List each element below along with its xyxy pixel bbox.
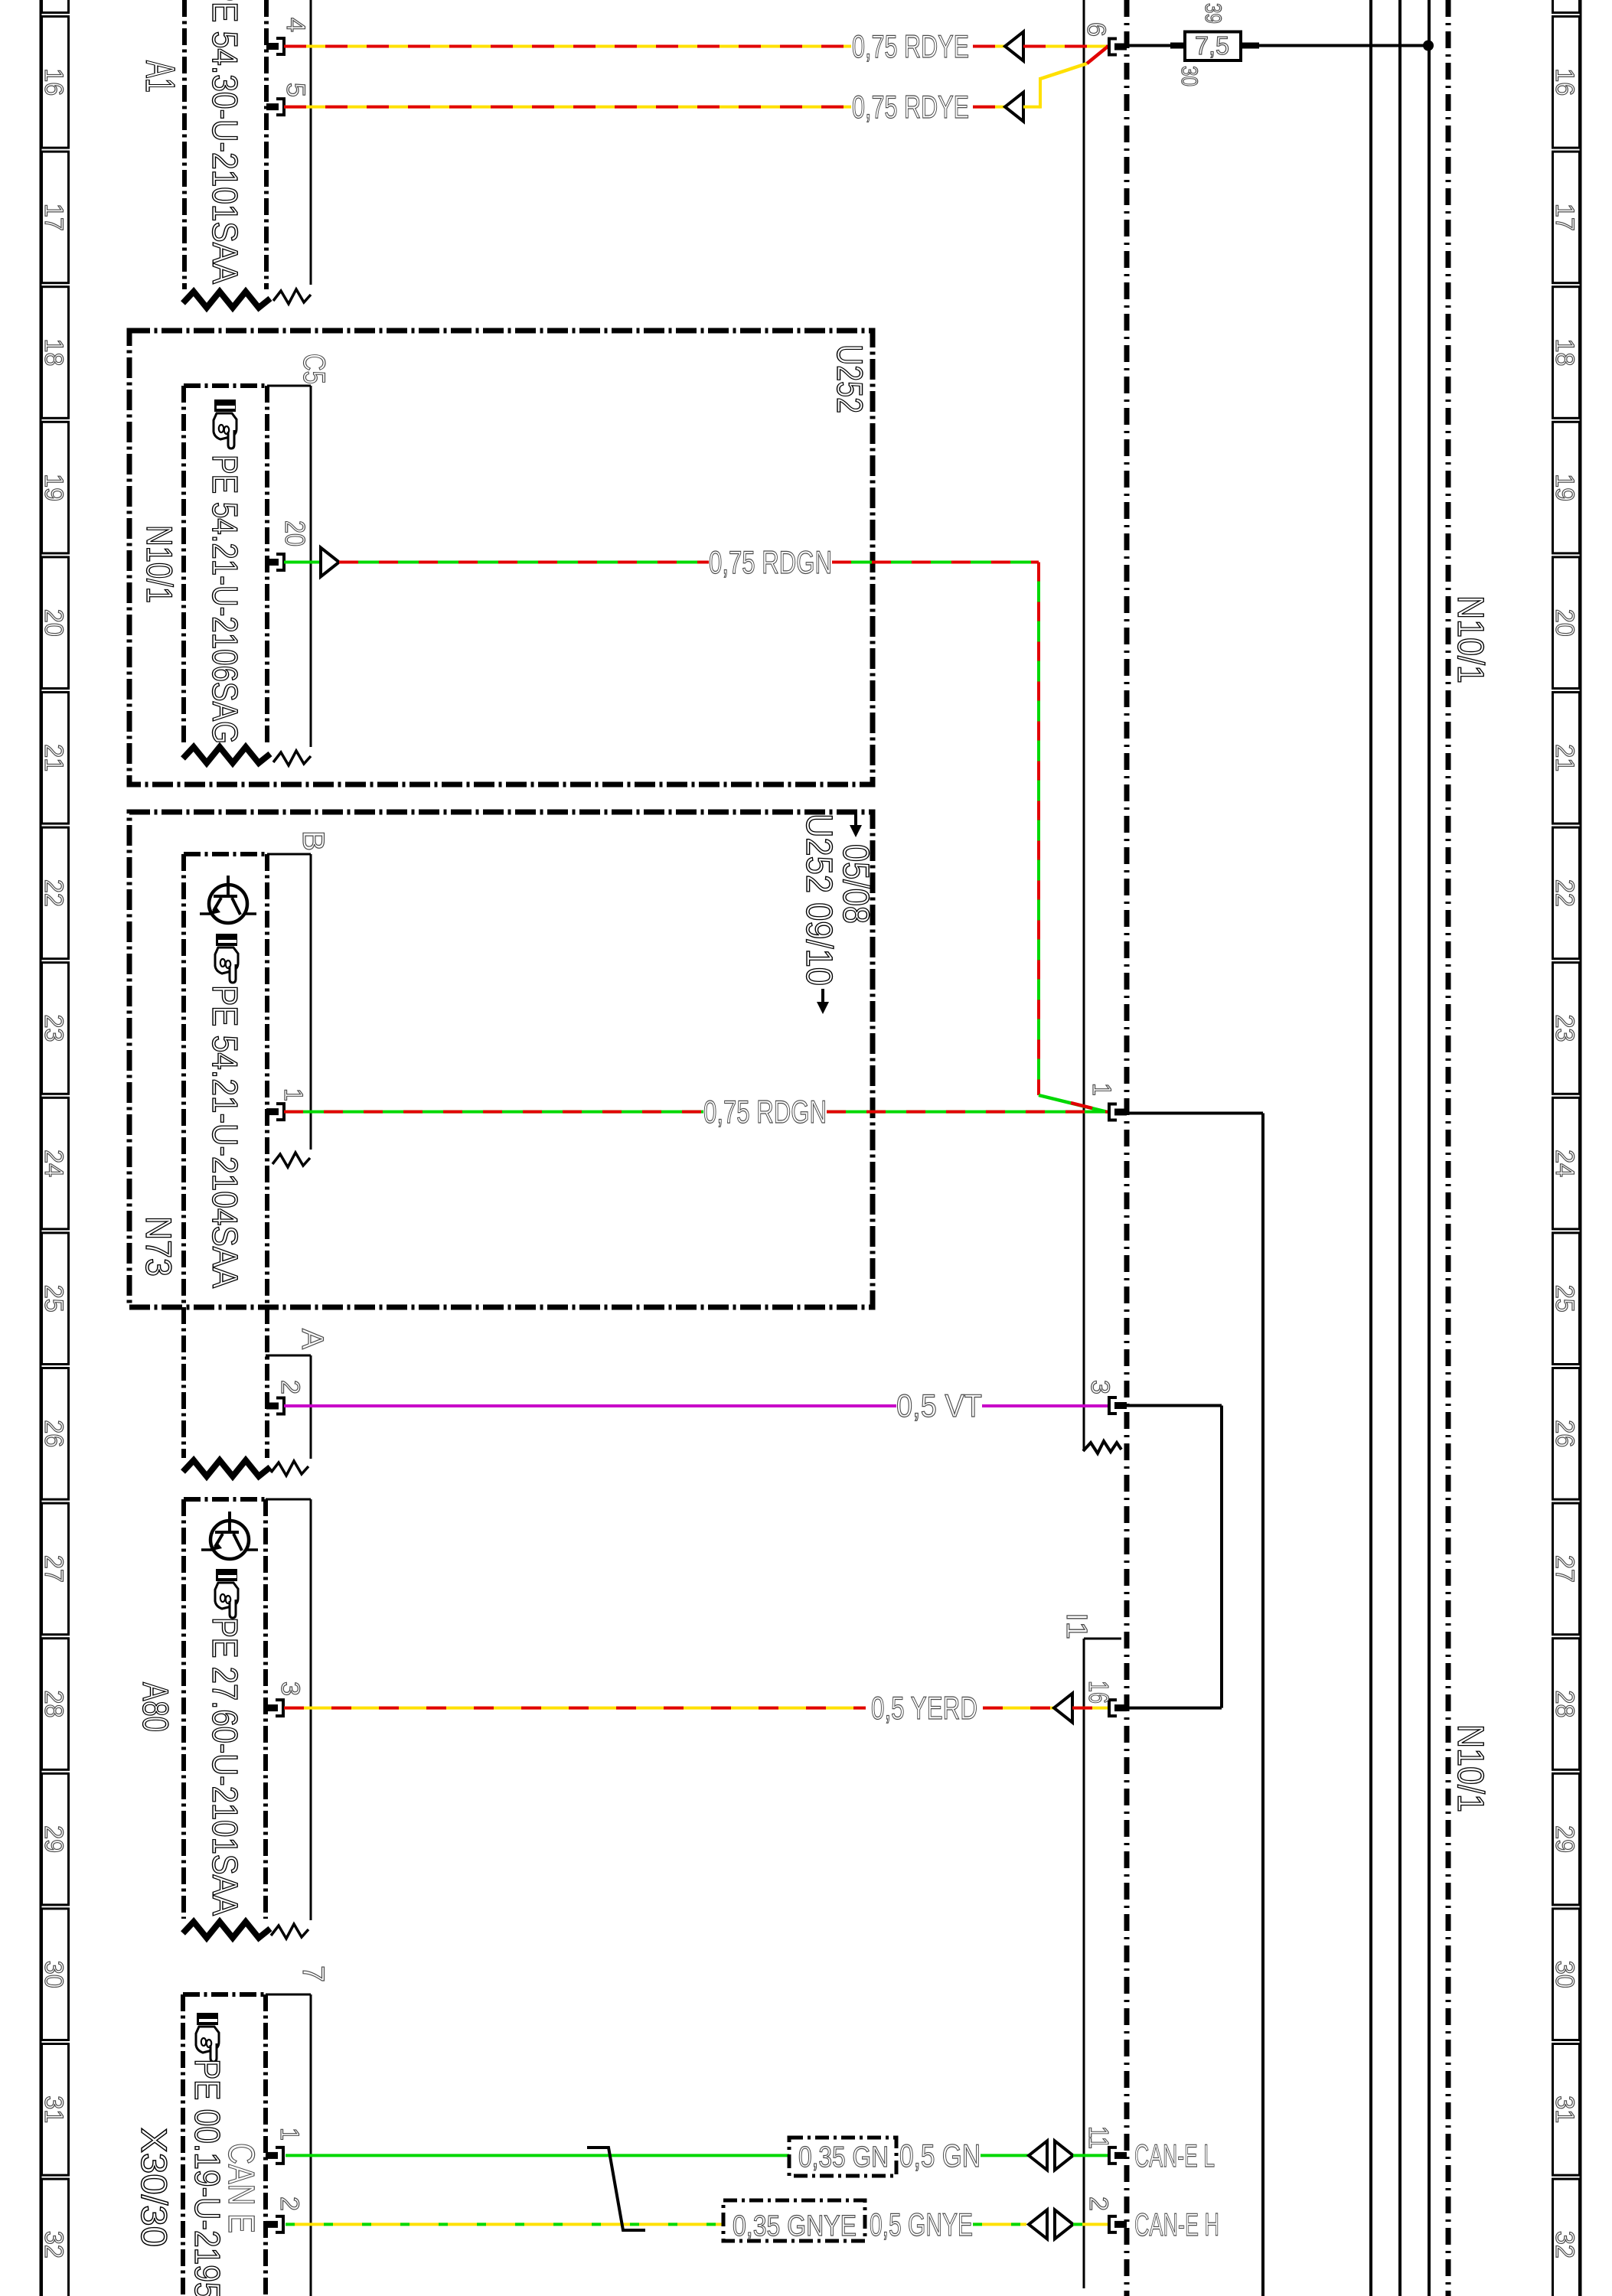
- svg-text:PE 27.60-U-2101SAA: PE 27.60-U-2101SAA: [205, 1617, 245, 1916]
- svg-text:17: 17: [39, 204, 68, 231]
- svg-text:1: 1: [275, 2128, 304, 2141]
- svg-text:U252 09/10: U252 09/10: [798, 814, 839, 986]
- svg-text:39: 39: [1200, 3, 1225, 24]
- svg-text:28: 28: [39, 1691, 68, 1718]
- svg-text:B: B: [296, 830, 330, 851]
- svg-text:24: 24: [1550, 1150, 1579, 1177]
- svg-text:25: 25: [39, 1285, 68, 1313]
- svg-text:N73: N73: [139, 1216, 179, 1277]
- svg-text:20: 20: [279, 520, 311, 546]
- svg-text:X30/30: X30/30: [134, 2128, 175, 2247]
- svg-text:23: 23: [1550, 1015, 1579, 1042]
- svg-text:1: 1: [1087, 1083, 1116, 1096]
- svg-text:26: 26: [39, 1420, 68, 1447]
- svg-text:0,75 RDYE: 0,75 RDYE: [852, 89, 969, 125]
- svg-text:A1: A1: [137, 60, 183, 93]
- svg-text:0,75 RDYE: 0,75 RDYE: [852, 28, 969, 64]
- svg-text:PE 54.21-U-2104SAA: PE 54.21-U-2104SAA: [205, 985, 245, 1288]
- svg-text:N10/1: N10/1: [139, 525, 180, 603]
- svg-text:21: 21: [39, 744, 68, 771]
- svg-text:23: 23: [39, 1015, 68, 1042]
- svg-text:25: 25: [1550, 1285, 1579, 1313]
- svg-text:CAN-E L: CAN-E L: [1134, 2138, 1215, 2174]
- svg-text:22: 22: [1550, 879, 1579, 907]
- svg-text:16: 16: [1550, 68, 1579, 96]
- svg-text:30: 30: [39, 1961, 68, 1988]
- svg-text:N10/1: N10/1: [1450, 1724, 1490, 1812]
- svg-text:19: 19: [1550, 474, 1579, 501]
- svg-text:0,5 YERD: 0,5 YERD: [871, 1690, 977, 1726]
- svg-text:05/08: 05/08: [835, 844, 876, 924]
- svg-text:29: 29: [1550, 1825, 1579, 1853]
- svg-text:29: 29: [39, 1825, 68, 1853]
- svg-text:30: 30: [1550, 1961, 1579, 1988]
- svg-text:0,35 GNYE: 0,35 GNYE: [733, 2210, 857, 2242]
- svg-text:4: 4: [281, 18, 310, 32]
- svg-text:20: 20: [1550, 609, 1579, 637]
- svg-text:16: 16: [1083, 1681, 1114, 1704]
- svg-text:27: 27: [39, 1555, 68, 1583]
- svg-text:0,75 RDGN: 0,75 RDGN: [703, 1094, 827, 1130]
- svg-text:6: 6: [1082, 22, 1111, 37]
- svg-text:19: 19: [39, 474, 68, 501]
- svg-text:PE 54.21-U-2106SAG: PE 54.21-U-2106SAG: [205, 455, 245, 744]
- svg-text:30: 30: [1176, 66, 1202, 86]
- svg-text:17: 17: [1550, 204, 1579, 231]
- svg-text:3: 3: [1085, 1380, 1114, 1394]
- svg-text:I1: I1: [1060, 1613, 1092, 1639]
- svg-text:32: 32: [1550, 2231, 1579, 2258]
- svg-text:C5: C5: [297, 354, 331, 384]
- svg-text:7: 7: [296, 1965, 330, 1982]
- svg-text:0,35 GN: 0,35 GN: [798, 2141, 889, 2174]
- svg-text:18: 18: [1550, 339, 1579, 367]
- svg-text:7,5: 7,5: [1195, 31, 1229, 60]
- svg-text:2: 2: [1084, 2197, 1113, 2211]
- svg-text:31: 31: [39, 2095, 68, 2123]
- svg-text:1: 1: [279, 1088, 308, 1101]
- svg-text:32: 32: [39, 2231, 68, 2258]
- svg-text:20: 20: [39, 609, 68, 637]
- svg-text:18: 18: [39, 339, 68, 367]
- svg-text:0,5 VT: 0,5 VT: [896, 1388, 982, 1424]
- svg-text:28: 28: [1550, 1691, 1579, 1718]
- svg-text:22: 22: [39, 879, 68, 907]
- svg-text:27: 27: [1550, 1555, 1579, 1583]
- svg-text:2: 2: [275, 2197, 304, 2211]
- svg-text:11: 11: [1083, 2126, 1114, 2149]
- svg-text:U252: U252: [830, 344, 870, 413]
- svg-text:N10/1: N10/1: [1450, 595, 1490, 683]
- svg-text:A: A: [295, 1329, 329, 1349]
- svg-text:31: 31: [1550, 2095, 1579, 2123]
- svg-text:24: 24: [39, 1150, 68, 1177]
- svg-text:0,5 GN: 0,5 GN: [899, 2138, 981, 2174]
- svg-text:CAN E: CAN E: [220, 2143, 261, 2233]
- svg-text:3: 3: [276, 1681, 305, 1696]
- svg-text:PE 54.30-U-2101SAA: PE 54.30-U-2101SAA: [205, 0, 245, 284]
- svg-text:A80: A80: [135, 1682, 176, 1732]
- svg-text:2: 2: [276, 1380, 305, 1394]
- svg-text:5: 5: [281, 83, 310, 97]
- svg-text:CAN-E H: CAN-E H: [1134, 2206, 1219, 2242]
- svg-text:26: 26: [1550, 1420, 1579, 1447]
- svg-text:0,75 RDGN: 0,75 RDGN: [709, 544, 832, 580]
- svg-text:21: 21: [1550, 744, 1579, 771]
- svg-text:0,5 GNYE: 0,5 GNYE: [870, 2206, 973, 2242]
- svg-text:16: 16: [39, 68, 68, 96]
